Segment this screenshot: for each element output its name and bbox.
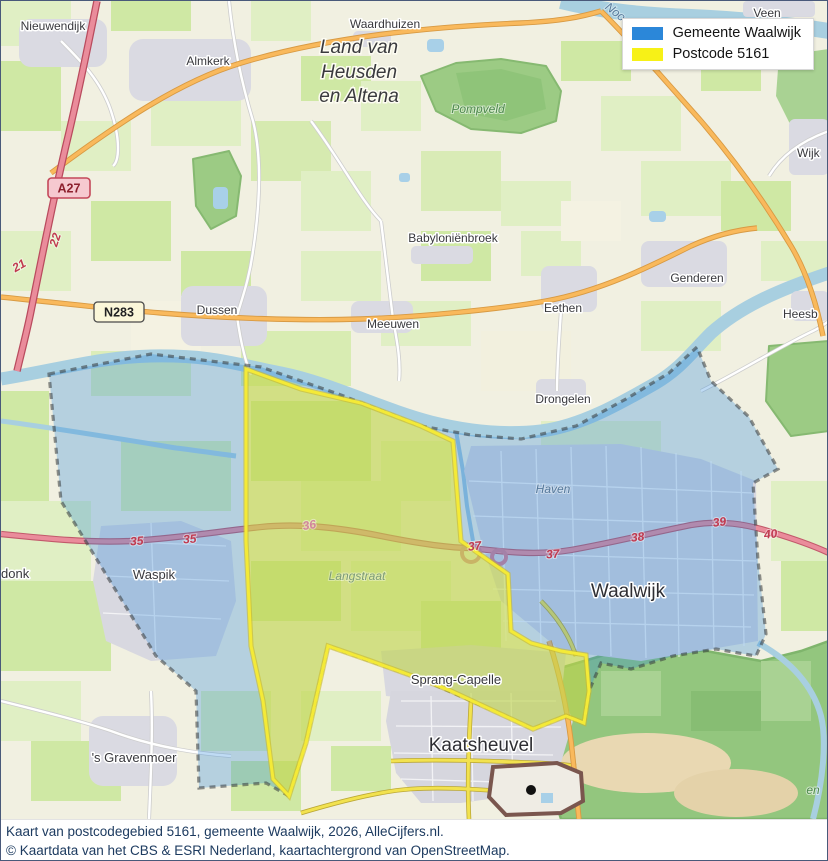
label-waspik: Waspik <box>133 567 176 582</box>
legend-swatch-postcode <box>632 48 663 61</box>
label-wijk: Wijk <box>797 146 821 160</box>
shield-n283: N283 <box>94 302 144 322</box>
label-meeuwen: Meeuwen <box>367 317 419 331</box>
urban-babylonienbroek <box>411 246 473 264</box>
caption-line1: Kaart van postcodegebied 5161, gemeente … <box>6 822 821 841</box>
legend-row-postcode: Postcode 5161 <box>632 46 801 62</box>
label-kaatsheuvel: Kaatsheuvel <box>429 735 534 756</box>
label-pompveld: Pompveld <box>451 102 505 116</box>
label-babylonienbroek: Babyloniënbroek <box>408 231 498 245</box>
label-donk: donk <box>1 566 30 581</box>
park-marker-dot <box>526 785 536 795</box>
map-canvas: A27 N283 22 21 35 35 36 37 37 38 39 40 <box>1 1 827 819</box>
exit-35a: 35 <box>130 534 145 549</box>
exit-35b: 35 <box>183 532 198 547</box>
map-legend: Gemeente Waalwijk Postcode 5161 <box>622 18 814 70</box>
label-forest-en: en <box>806 783 820 797</box>
label-waardhuizen: Waardhuizen <box>350 17 420 31</box>
shield-n283-label: N283 <box>104 306 134 320</box>
pond-3 <box>649 211 666 222</box>
pond-1 <box>213 187 228 209</box>
map-caption: Kaart van postcodegebied 5161, gemeente … <box>1 819 827 861</box>
caption-line2: © Kaartdata van het CBS & ESRI Nederland… <box>6 841 821 860</box>
map-svg: A27 N283 22 21 35 35 36 37 37 38 39 40 <box>1 1 827 819</box>
exit-39: 39 <box>712 514 727 530</box>
label-eethen: Eethen <box>544 301 582 315</box>
label-region-line2: Heusden <box>321 62 397 83</box>
label-region-line1: Land van <box>320 37 398 58</box>
label-almkerk: Almkerk <box>186 54 230 68</box>
pond-2 <box>427 39 444 52</box>
legend-label-municipality: Gemeente Waalwijk <box>673 25 801 41</box>
label-haven: Haven <box>536 482 571 496</box>
label-waalwijk: Waalwijk <box>591 581 666 602</box>
exit-40: 40 <box>762 526 778 541</box>
urban-almkerk <box>129 39 251 101</box>
shield-a27-label: A27 <box>58 182 81 196</box>
label-gravenmoer: 's Gravenmoer <box>92 750 178 765</box>
pond-4 <box>399 173 410 182</box>
legend-label-postcode: Postcode 5161 <box>673 46 770 62</box>
label-drongelen: Drongelen <box>535 392 590 406</box>
shield-a27: A27 <box>48 178 90 198</box>
label-nieuwendijk: Nieuwendijk <box>21 19 87 33</box>
map-figure: A27 N283 22 21 35 35 36 37 37 38 39 40 <box>0 0 828 861</box>
label-region-line3: en Altena <box>319 86 399 107</box>
exit-37b: 37 <box>546 546 562 561</box>
exit-36: 36 <box>302 517 318 533</box>
legend-row-municipality: Gemeente Waalwijk <box>632 25 801 41</box>
theme-park <box>489 763 583 815</box>
exit-38: 38 <box>630 529 645 544</box>
label-genderen: Genderen <box>670 271 723 285</box>
label-langstraat: Langstraat <box>329 569 386 583</box>
label-dussen: Dussen <box>197 303 238 317</box>
label-heesbeen: Heesb <box>783 307 818 321</box>
legend-swatch-municipality <box>632 27 663 40</box>
label-sprang-capelle: Sprang-Capelle <box>411 672 501 687</box>
